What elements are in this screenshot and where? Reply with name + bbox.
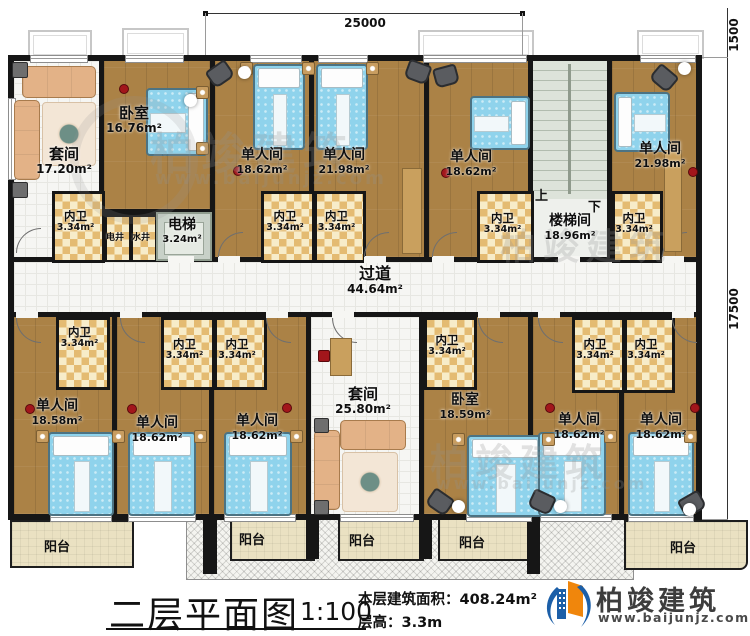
title-underline (106, 628, 366, 630)
red-marker (690, 403, 700, 413)
ceiling-light (184, 94, 197, 107)
label-single-f: 单人间 18.62m² (118, 416, 196, 444)
nightstand (196, 86, 209, 99)
label-bathroom: 内卫3.34m² (53, 210, 98, 234)
label-corridor: 过道 44.64m² (330, 265, 420, 296)
label-bathroom: 内卫3.34m² (161, 338, 208, 362)
bed (470, 96, 530, 150)
dimension-top: 25000 (330, 16, 400, 30)
nightstand (366, 62, 379, 75)
label-balcony: 阳台 (661, 537, 705, 556)
floor-plan-page: 柏竣建筑 www.baijunjz.com 柏竣建筑 柏竣建筑 www.baij… (0, 0, 750, 636)
side-table (314, 500, 329, 515)
window (30, 55, 88, 63)
red-marker (127, 404, 137, 414)
door-opening (538, 311, 560, 318)
label-bathroom: 内卫3.34m² (572, 338, 618, 362)
desk (402, 168, 422, 254)
label-single-d: 单人间 21.98m² (624, 142, 696, 170)
rug (342, 452, 398, 512)
window (125, 55, 184, 63)
wall-stub (203, 512, 217, 574)
door-opening (662, 256, 684, 263)
window (318, 55, 368, 63)
nightstand (302, 62, 315, 75)
label-bathroom: 内卫3.34m² (624, 338, 668, 362)
label-suite1: 套间 17.20m² (20, 146, 108, 176)
nightstand (452, 433, 465, 446)
window (423, 55, 527, 63)
label-shaft-electric: 电井 (104, 230, 126, 243)
extension-line (522, 13, 523, 55)
door-opening (168, 256, 194, 263)
label-bedroom1: 卧室 16.76m² (100, 105, 168, 135)
extension-line (702, 57, 728, 58)
red-marker (282, 403, 292, 413)
label-balcony: 阳台 (340, 530, 384, 549)
label-single-g: 单人间 18.62m² (218, 414, 296, 442)
label-suite2: 套间 25.80m² (330, 386, 396, 416)
company-logo-icon (543, 577, 593, 631)
label-elevator: 电梯 3.24m² (156, 218, 208, 245)
nightstand (36, 430, 49, 443)
door-opening (332, 311, 354, 318)
door-opening (364, 256, 386, 263)
label-bathroom: 内卫3.34m² (262, 210, 308, 234)
door-opening (478, 311, 500, 318)
label-shaft-water: 水井 (130, 230, 152, 243)
sofa (314, 430, 340, 510)
bed (316, 64, 368, 150)
extension-line (205, 13, 206, 55)
label-single-i: 单人间 18.62m² (626, 413, 696, 441)
door-opening (120, 311, 142, 318)
dimension-line-top (205, 13, 523, 14)
chair-red (318, 350, 330, 362)
ceiling-light (683, 503, 696, 516)
ceiling-light (238, 66, 251, 79)
window (250, 55, 302, 63)
stair-down-label: 下 (588, 196, 601, 215)
label-single-c: 单人间 18.62m² (435, 150, 507, 178)
label-bathroom: 内卫3.34m² (56, 326, 103, 350)
label-bathroom: 内卫3.34m² (612, 212, 656, 236)
label-bathroom: 内卫3.34m² (314, 210, 359, 234)
label-balcony: 阳台 (450, 532, 494, 551)
ceiling-light (678, 62, 691, 75)
bed (253, 64, 305, 150)
label-single-h: 单人间 18.62m² (540, 413, 618, 441)
side-table (12, 182, 28, 198)
door-opening (672, 311, 694, 318)
desk (330, 338, 352, 376)
ceiling-light (554, 500, 567, 513)
label-balcony: 阳台 (230, 529, 274, 548)
floor-area-line: 本层建筑面积：408.24m² (358, 588, 537, 609)
dimension-right-lower: 17500 (727, 285, 741, 333)
bed (128, 432, 196, 516)
dimension-right-upper: 1500 (727, 15, 741, 55)
door-opening (266, 311, 288, 318)
logo-icon-svg (543, 577, 593, 631)
sofa (340, 420, 406, 450)
label-stairwell: 楼梯间 18.96m² (533, 214, 607, 242)
red-marker (545, 403, 555, 413)
door-opening (16, 311, 38, 318)
nightstand (196, 142, 209, 155)
sofa (22, 66, 96, 98)
door-opening (558, 256, 580, 263)
side-table (314, 418, 329, 433)
ceiling-light (452, 500, 465, 513)
red-marker (119, 84, 129, 94)
stair-up-label: 上 (535, 185, 548, 204)
bed (224, 432, 292, 516)
bed (48, 432, 114, 516)
side-table (12, 62, 28, 78)
extension-line (702, 519, 728, 520)
door-opening (432, 256, 454, 263)
label-bathroom: 内卫3.34m² (478, 212, 527, 236)
stair-rail (568, 64, 571, 194)
label-bedroom2: 卧室 18.59m² (430, 393, 500, 421)
door-opening (218, 256, 240, 263)
balcony-door (340, 514, 414, 522)
floor-height-line: 层高：3.3m (358, 611, 442, 632)
label-bathroom: 内卫3.34m² (424, 334, 470, 358)
label-bathroom: 内卫3.34m² (214, 338, 260, 362)
label-single-a: 单人间 18.62m² (222, 148, 302, 176)
company-website: www.baijunjz.com (598, 610, 750, 625)
label-balcony: 阳台 (35, 536, 79, 555)
label-single-e: 单人间 18.58m² (18, 399, 96, 427)
label-single-b: 单人间 21.98m² (302, 148, 386, 176)
